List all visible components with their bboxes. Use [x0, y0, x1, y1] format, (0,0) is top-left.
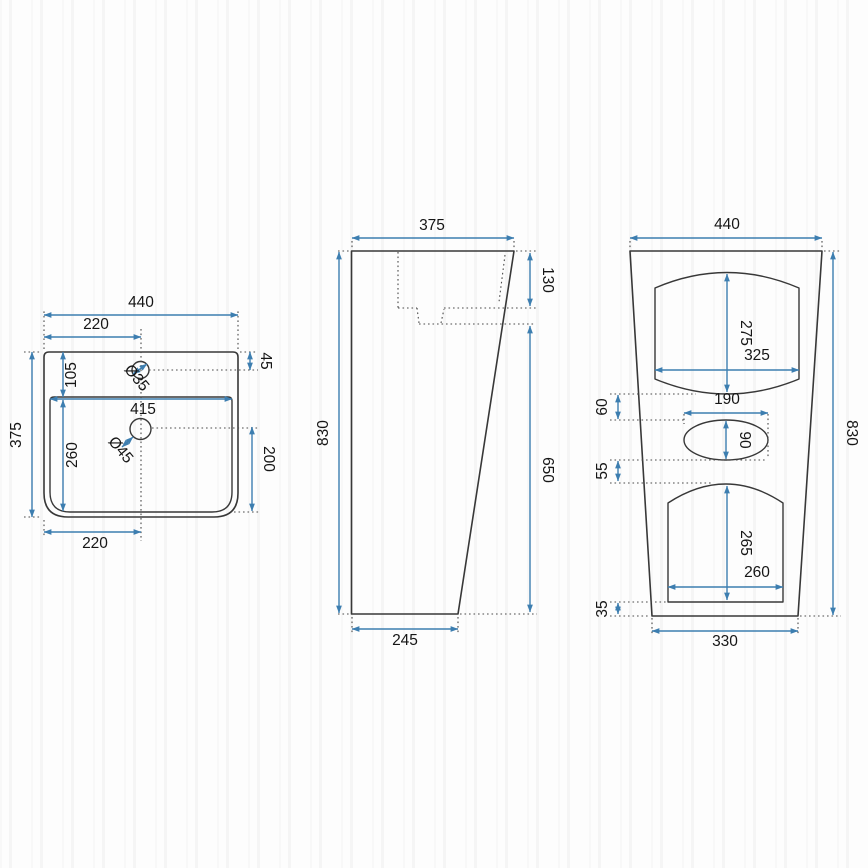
dim-label-depth-bottom: 245: [392, 632, 418, 649]
dim-label-recess-lower-width: 260: [744, 564, 770, 581]
dim-label-oval-width: 190: [714, 391, 740, 408]
side-view: 375 830 130 650 245: [315, 217, 556, 649]
dim-label-faucet-from-back: 45: [257, 352, 274, 369]
dim-label-basin-depth: 260: [64, 442, 81, 468]
dim-label-width-bottom-front: 330: [712, 633, 738, 650]
top-view: 440 220 45 105 415 260 200 375 220 Ø35 Ø…: [8, 294, 277, 552]
dim-label-width-to-center-bottom: 220: [82, 535, 108, 552]
dim-label-gap-recess-to-oval: 60: [594, 398, 611, 416]
dim-label-depth-total: 375: [8, 422, 25, 448]
dim-label-gap-oval-to-recess: 55: [594, 462, 611, 479]
dim-label-base-height: 35: [594, 600, 611, 617]
dim-label-recess-upper-width: 325: [744, 347, 770, 364]
side-view-hidden-basin-lines: [398, 251, 537, 324]
dim-label-width-total: 440: [128, 294, 154, 311]
drawing-canvas: 440 220 45 105 415 260 200 375 220 Ø35 Ø…: [0, 0, 868, 868]
dim-label-basin-width: 415: [130, 401, 156, 418]
dim-label-front-height: 650: [539, 457, 556, 483]
dim-label-recess-upper-height: 275: [737, 320, 754, 346]
top-view-extension-lines: [24, 311, 260, 541]
dim-label-width-top-front: 440: [714, 216, 740, 233]
dim-label-width-to-center-top: 220: [83, 316, 109, 333]
dim-label-basin-from-back: 105: [63, 362, 80, 388]
technical-drawing: 440 220 45 105 415 260 200 375 220 Ø35 Ø…: [0, 0, 868, 868]
dim-label-height-total-front: 830: [843, 420, 860, 446]
lower-recess-outline: [668, 484, 783, 602]
dim-label-oval-height: 90: [736, 431, 753, 449]
dim-label-recess-lower-height: 265: [737, 530, 754, 556]
dim-label-height-total-side: 830: [315, 420, 332, 446]
dim-label-depth-top: 375: [419, 217, 445, 234]
side-view-outline: [352, 251, 515, 614]
dim-label-basin-inner-depth: 130: [539, 267, 556, 293]
front-view: 440 830 275 325 190 90 60 55 265 260 35 …: [594, 216, 860, 650]
dim-label-drain-to-front: 200: [260, 446, 277, 472]
